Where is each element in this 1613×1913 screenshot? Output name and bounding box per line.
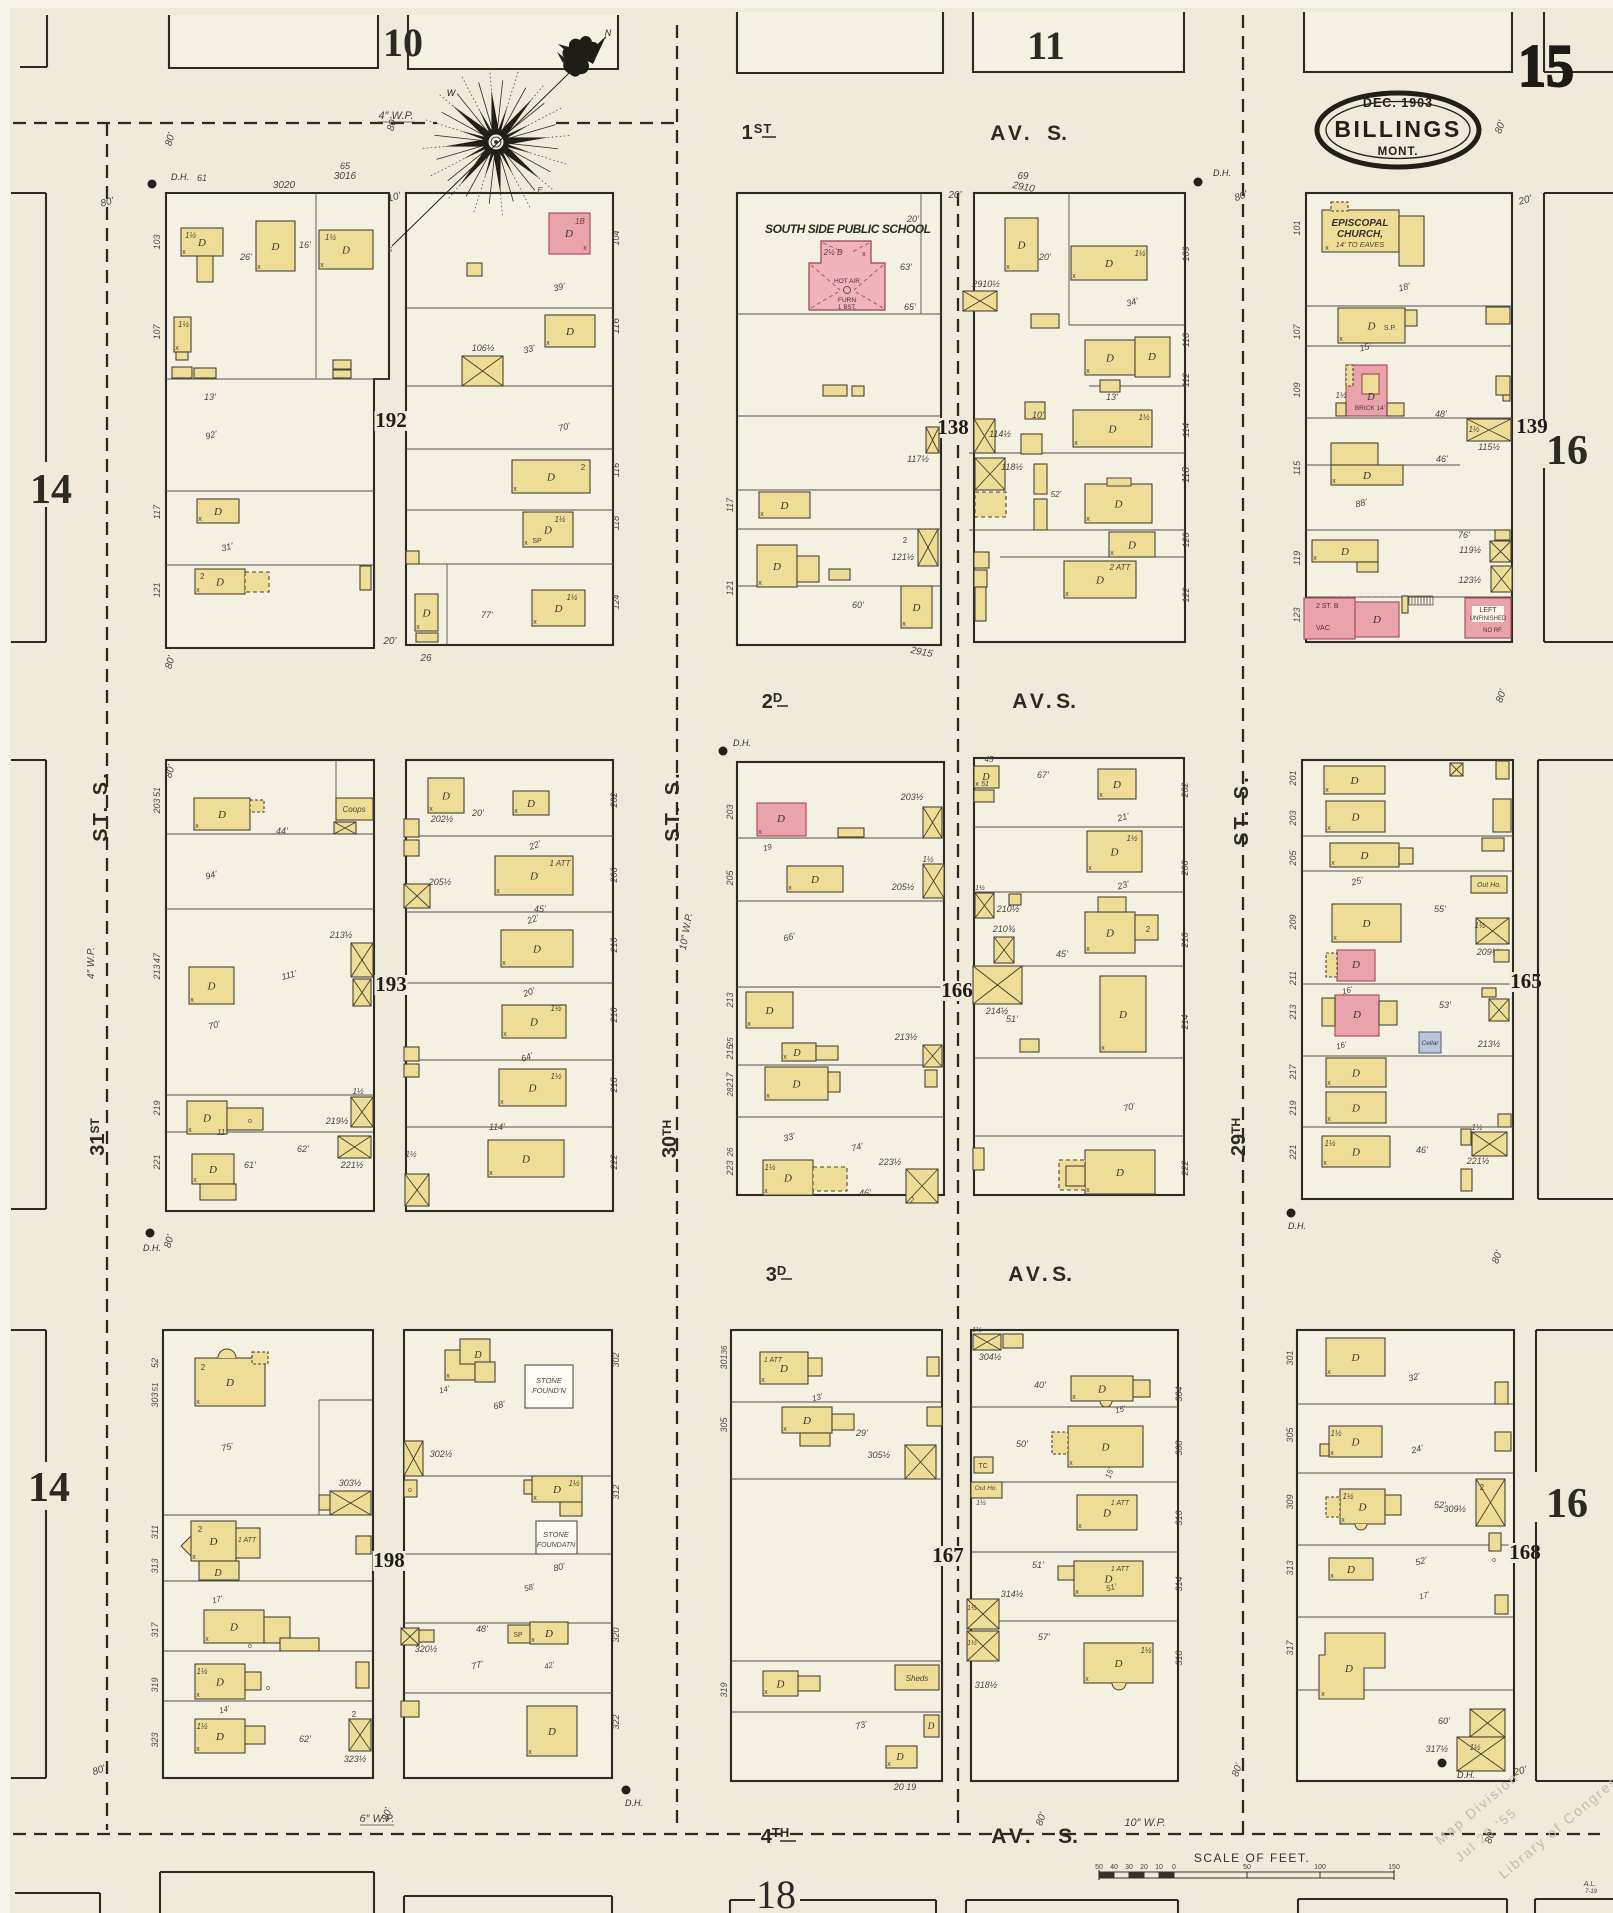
svg-text:D: D bbox=[1108, 424, 1117, 436]
svg-text:D: D bbox=[213, 506, 222, 518]
svg-text:D: D bbox=[229, 1622, 238, 1634]
svg-text:1½: 1½ bbox=[185, 231, 196, 240]
svg-text:11: 11 bbox=[1027, 23, 1065, 68]
svg-text:1½: 1½ bbox=[972, 1326, 982, 1334]
svg-text:219½: 219½ bbox=[325, 1116, 349, 1126]
svg-text:1½: 1½ bbox=[1126, 834, 1137, 843]
svg-text:101: 101 bbox=[1292, 220, 1302, 235]
svg-text:65’: 65’ bbox=[904, 302, 917, 312]
svg-text:114½: 114½ bbox=[989, 429, 1011, 439]
svg-text:x: x bbox=[500, 1099, 504, 1106]
svg-text:1½: 1½ bbox=[1335, 391, 1346, 400]
svg-text:D: D bbox=[1105, 928, 1114, 940]
svg-text:2 ST. B: 2 ST. B bbox=[1316, 603, 1339, 610]
svg-text:1½: 1½ bbox=[1330, 1429, 1341, 1438]
svg-text:x: x bbox=[1330, 1450, 1334, 1457]
svg-text:1½: 1½ bbox=[1140, 1646, 1151, 1655]
svg-text:x: x bbox=[1086, 368, 1090, 375]
svg-text:40’: 40’ bbox=[1034, 1380, 1047, 1390]
svg-text:314½: 314½ bbox=[1001, 1589, 1024, 1599]
svg-text:x: x bbox=[182, 249, 186, 256]
svg-text:1½: 1½ bbox=[554, 515, 565, 524]
svg-text:52: 52 bbox=[150, 1358, 160, 1368]
svg-text:x: x bbox=[188, 1127, 192, 1134]
svg-text:13’: 13’ bbox=[204, 392, 217, 402]
svg-text:305½: 305½ bbox=[867, 1450, 890, 1460]
svg-text:20’: 20’ bbox=[471, 808, 485, 818]
svg-text:45: 45 bbox=[985, 755, 994, 764]
svg-text:D: D bbox=[1340, 546, 1349, 558]
svg-text:221: 221 bbox=[1288, 1144, 1298, 1160]
svg-text:25: 25 bbox=[726, 1037, 735, 1047]
svg-text:2: 2 bbox=[910, 1196, 915, 1205]
svg-text:304: 304 bbox=[1174, 1386, 1184, 1401]
svg-text:46’: 46’ bbox=[1436, 454, 1449, 464]
svg-text:20’: 20’ bbox=[906, 214, 920, 224]
svg-text:121½: 121½ bbox=[892, 552, 915, 562]
svg-text:o: o bbox=[1492, 1557, 1496, 1564]
svg-text:303½: 303½ bbox=[339, 1478, 362, 1488]
svg-text:106½: 106½ bbox=[472, 343, 495, 353]
svg-text:x: x bbox=[196, 587, 200, 594]
svg-text:D: D bbox=[1102, 1508, 1111, 1520]
svg-text:FOUND’N: FOUND’N bbox=[532, 1386, 566, 1395]
svg-text:D: D bbox=[1112, 779, 1121, 791]
svg-text:D: D bbox=[215, 1731, 224, 1743]
svg-text:x: x bbox=[1341, 1517, 1345, 1524]
svg-text:D: D bbox=[1017, 240, 1026, 252]
svg-text:D.H.: D.H. bbox=[171, 172, 189, 182]
svg-text:x: x bbox=[190, 997, 194, 1004]
svg-text:305: 305 bbox=[719, 1417, 729, 1433]
svg-text:D: D bbox=[215, 577, 224, 589]
svg-text:221: 221 bbox=[152, 1154, 162, 1170]
svg-text:x: x bbox=[531, 1637, 535, 1644]
svg-text:S.P.: S.P. bbox=[1384, 325, 1396, 332]
svg-text:320½: 320½ bbox=[415, 1644, 438, 1654]
svg-text:UNFINISHED: UNFINISHED bbox=[1470, 616, 1507, 622]
svg-text:2910½: 2910½ bbox=[971, 279, 1000, 289]
svg-text:20’: 20’ bbox=[947, 190, 962, 201]
svg-text:213: 213 bbox=[725, 992, 735, 1008]
svg-text:217: 217 bbox=[725, 1072, 735, 1089]
svg-text:213½: 213½ bbox=[894, 1032, 918, 1042]
svg-text:D: D bbox=[1114, 1658, 1123, 1670]
svg-text:210: 210 bbox=[1180, 932, 1190, 948]
svg-text:D: D bbox=[772, 561, 781, 573]
svg-text:13’: 13’ bbox=[1106, 392, 1119, 402]
svg-text:222: 222 bbox=[609, 1154, 619, 1170]
svg-text:x: x bbox=[192, 1554, 196, 1561]
svg-text:47: 47 bbox=[152, 952, 162, 963]
svg-text:1 ATT: 1 ATT bbox=[764, 1357, 783, 1364]
svg-text:Coops: Coops bbox=[342, 805, 365, 814]
svg-text:x: x bbox=[783, 1426, 787, 1433]
svg-text:D: D bbox=[271, 241, 280, 253]
svg-text:216: 216 bbox=[609, 1007, 619, 1023]
svg-text:1½: 1½ bbox=[764, 1163, 775, 1172]
svg-text:D: D bbox=[543, 525, 552, 537]
svg-text:x: x bbox=[496, 888, 500, 895]
svg-text:2: 2 bbox=[201, 1363, 206, 1372]
svg-text:x: x bbox=[1085, 1676, 1089, 1683]
svg-text:1½: 1½ bbox=[566, 593, 577, 602]
svg-text:BRICK 14’: BRICK 14’ bbox=[1355, 405, 1386, 412]
svg-text:D.H.: D.H. bbox=[143, 1243, 161, 1253]
svg-text:x: x bbox=[1327, 825, 1331, 832]
svg-text:SOUTH SIDE PUBLIC SCHOOL: SOUTH SIDE PUBLIC SCHOOL bbox=[765, 222, 931, 236]
svg-text:10: 10 bbox=[383, 20, 423, 65]
svg-text:x: x bbox=[205, 1636, 209, 1643]
svg-text:BILLINGS: BILLINGS bbox=[1334, 116, 1461, 142]
svg-text:50: 50 bbox=[1095, 1864, 1103, 1871]
svg-text:26’: 26’ bbox=[239, 252, 253, 262]
svg-text:51’: 51’ bbox=[1006, 1014, 1019, 1024]
svg-text:67’: 67’ bbox=[1037, 770, 1050, 780]
svg-text:117: 117 bbox=[152, 504, 162, 519]
svg-text:1½: 1½ bbox=[976, 1499, 986, 1507]
svg-text:D: D bbox=[1351, 1352, 1360, 1364]
svg-text:x: x bbox=[1072, 273, 1076, 280]
svg-text:o: o bbox=[248, 1643, 252, 1650]
svg-text:1½: 1½ bbox=[196, 1667, 207, 1676]
svg-text:D: D bbox=[765, 1005, 774, 1017]
svg-text:D: D bbox=[1115, 1167, 1124, 1179]
svg-text:D: D bbox=[547, 1726, 556, 1738]
svg-text:1½: 1½ bbox=[568, 1479, 579, 1488]
svg-text:D: D bbox=[544, 1628, 553, 1640]
svg-text:123: 123 bbox=[1292, 607, 1302, 622]
svg-text:116: 116 bbox=[611, 463, 621, 477]
svg-text:D: D bbox=[1147, 351, 1156, 363]
svg-text:D: D bbox=[1351, 1068, 1360, 1080]
svg-text:51: 51 bbox=[152, 787, 162, 797]
svg-text:D: D bbox=[1095, 575, 1104, 587]
svg-text:x: x bbox=[533, 1495, 537, 1502]
svg-text:211: 211 bbox=[1288, 971, 1298, 986]
svg-text:D: D bbox=[1360, 850, 1369, 862]
svg-text:16: 16 bbox=[1546, 428, 1588, 474]
svg-text:STONE: STONE bbox=[536, 1376, 563, 1385]
svg-text:53’: 53’ bbox=[1439, 1000, 1452, 1010]
svg-text:D: D bbox=[202, 1113, 211, 1125]
svg-text:10’: 10’ bbox=[1032, 410, 1045, 420]
svg-text:S.: S. bbox=[1058, 1825, 1078, 1848]
svg-text:323: 323 bbox=[150, 1732, 160, 1747]
svg-text:318: 318 bbox=[1174, 1650, 1184, 1665]
svg-text:D: D bbox=[1351, 959, 1360, 971]
svg-text:Sheds: Sheds bbox=[906, 1674, 929, 1683]
svg-text:x: x bbox=[503, 1031, 507, 1038]
svg-text:1½: 1½ bbox=[975, 884, 985, 892]
svg-text:214: 214 bbox=[1180, 1014, 1190, 1030]
svg-text:209: 209 bbox=[1288, 914, 1298, 930]
svg-text:1½: 1½ bbox=[922, 855, 933, 864]
svg-text:114’: 114’ bbox=[489, 1122, 506, 1132]
svg-text:D: D bbox=[209, 1536, 218, 1548]
svg-text:167: 167 bbox=[932, 1543, 964, 1567]
svg-text:DEC. 1903: DEC. 1903 bbox=[1363, 96, 1433, 110]
svg-text:14: 14 bbox=[30, 467, 72, 513]
svg-text:302: 302 bbox=[611, 1352, 621, 1367]
svg-text:x: x bbox=[196, 1399, 200, 1406]
svg-text:D: D bbox=[1118, 1009, 1127, 1021]
svg-text:202½: 202½ bbox=[430, 814, 454, 824]
svg-text:D: D bbox=[565, 326, 574, 338]
svg-text:2: 2 bbox=[1146, 925, 1151, 934]
svg-text:HOT AIR: HOT AIR bbox=[834, 278, 860, 285]
svg-text:115: 115 bbox=[1292, 460, 1302, 475]
svg-text:28: 28 bbox=[726, 1087, 735, 1097]
svg-text:x: x bbox=[196, 1692, 200, 1699]
svg-text:D: D bbox=[441, 791, 450, 803]
svg-text:193: 193 bbox=[375, 972, 407, 996]
svg-text:51: 51 bbox=[151, 1383, 160, 1392]
svg-text:D: D bbox=[1351, 1103, 1360, 1115]
svg-text:D.H.: D.H. bbox=[733, 738, 751, 748]
svg-text:206: 206 bbox=[609, 867, 619, 883]
svg-text:4″ W.P.: 4″ W.P. bbox=[86, 947, 97, 979]
svg-text:119½: 119½ bbox=[1459, 545, 1481, 555]
svg-text:x: x bbox=[198, 516, 202, 523]
svg-text:202: 202 bbox=[609, 792, 619, 808]
svg-text:x: x bbox=[1086, 946, 1090, 953]
svg-text:x: x bbox=[1327, 1369, 1331, 1376]
svg-text:x: x bbox=[489, 1170, 493, 1177]
svg-text:x: x bbox=[1321, 1691, 1325, 1698]
svg-text:x: x bbox=[1325, 245, 1329, 252]
svg-text:122: 122 bbox=[1181, 587, 1191, 602]
svg-text:x: x bbox=[196, 1746, 200, 1753]
svg-text:221½: 221½ bbox=[340, 1160, 364, 1170]
svg-text:x: x bbox=[764, 1689, 768, 1696]
svg-text:124: 124 bbox=[611, 594, 621, 609]
svg-text:2: 2 bbox=[903, 536, 908, 545]
svg-text:D: D bbox=[422, 608, 431, 620]
svg-text:2: 2 bbox=[200, 572, 205, 581]
svg-text:223: 223 bbox=[725, 1160, 735, 1176]
svg-text:51: 51 bbox=[981, 781, 989, 788]
svg-text:77’: 77’ bbox=[481, 610, 494, 620]
svg-text:109: 109 bbox=[1181, 246, 1191, 261]
svg-text:x: x bbox=[1110, 550, 1114, 557]
svg-text:SP: SP bbox=[532, 538, 542, 545]
svg-text:D: D bbox=[1352, 1009, 1361, 1021]
svg-text:40: 40 bbox=[1110, 1864, 1118, 1871]
svg-text:D: D bbox=[776, 1679, 785, 1691]
svg-text:118: 118 bbox=[1181, 467, 1192, 483]
svg-text:D: D bbox=[532, 944, 541, 956]
svg-text:1½: 1½ bbox=[967, 1639, 977, 1647]
svg-text:MONT.: MONT. bbox=[1378, 146, 1419, 158]
svg-text:1½: 1½ bbox=[550, 1004, 561, 1013]
svg-text:x: x bbox=[1101, 1045, 1105, 1052]
svg-text:205½: 205½ bbox=[428, 877, 452, 887]
svg-text:109: 109 bbox=[1292, 382, 1302, 397]
svg-text:D: D bbox=[529, 1017, 538, 1029]
svg-text:x: x bbox=[1065, 591, 1069, 598]
svg-text:10: 10 bbox=[1155, 1864, 1163, 1871]
svg-text:D: D bbox=[564, 228, 573, 240]
svg-text:52’: 52’ bbox=[1051, 490, 1062, 499]
svg-text:D: D bbox=[197, 237, 206, 249]
svg-text:D: D bbox=[213, 1568, 222, 1579]
svg-text:30: 30 bbox=[1125, 1864, 1133, 1871]
svg-text:o: o bbox=[266, 1685, 270, 1692]
svg-text:115½: 115½ bbox=[1478, 442, 1500, 452]
svg-text:D: D bbox=[1350, 775, 1359, 787]
svg-text:1½: 1½ bbox=[550, 1072, 561, 1081]
svg-text:323½: 323½ bbox=[344, 1754, 367, 1764]
svg-text:48’: 48’ bbox=[476, 1624, 489, 1634]
svg-text:1½: 1½ bbox=[1342, 1492, 1353, 1501]
svg-text:SP: SP bbox=[513, 1632, 523, 1639]
svg-text:D: D bbox=[810, 874, 819, 886]
svg-text:VAC: VAC bbox=[1316, 625, 1330, 632]
svg-text:15: 15 bbox=[1518, 33, 1574, 99]
svg-text:x: x bbox=[758, 829, 762, 836]
svg-text:309½: 309½ bbox=[1443, 1504, 1466, 1514]
svg-text:1½: 1½ bbox=[1468, 425, 1479, 434]
svg-text:1B: 1B bbox=[575, 217, 585, 226]
svg-text:x: x bbox=[887, 1761, 891, 1768]
svg-text:EPISCOPAL: EPISCOPAL bbox=[1331, 218, 1388, 229]
svg-text:FOUNDATN: FOUNDATN bbox=[537, 1542, 576, 1549]
svg-text:110: 110 bbox=[1181, 333, 1191, 347]
svg-text:AV.: AV. bbox=[1012, 690, 1056, 713]
svg-text:121: 121 bbox=[725, 580, 735, 595]
svg-text:61: 61 bbox=[197, 173, 207, 183]
svg-text:117½: 117½ bbox=[907, 454, 929, 464]
svg-text:1 ‌ BST.: 1 ‌ BST. bbox=[838, 305, 857, 311]
svg-text:100: 100 bbox=[1314, 1864, 1326, 1871]
svg-text:311: 311 bbox=[150, 1525, 160, 1539]
svg-text:20’: 20’ bbox=[382, 636, 397, 647]
svg-text:50’: 50’ bbox=[1016, 1439, 1029, 1449]
svg-text:x: x bbox=[758, 580, 762, 587]
svg-text:D: D bbox=[802, 1415, 811, 1427]
svg-text:D: D bbox=[1101, 1442, 1110, 1454]
svg-text:210¾: 210¾ bbox=[992, 924, 1016, 934]
svg-text:1 ATT: 1 ATT bbox=[1111, 1566, 1130, 1573]
svg-text:FURN: FURN bbox=[838, 297, 856, 304]
svg-text:D: D bbox=[780, 500, 789, 512]
svg-text:D: D bbox=[1127, 540, 1136, 552]
svg-text:221½: 221½ bbox=[1466, 1156, 1490, 1166]
svg-text:202: 202 bbox=[1180, 782, 1190, 798]
svg-text:198: 198 bbox=[373, 1548, 405, 1572]
svg-text:1½: 1½ bbox=[1134, 249, 1145, 258]
svg-text:1 ATT: 1 ATT bbox=[1111, 1500, 1130, 1507]
svg-text:20’: 20’ bbox=[1038, 252, 1052, 262]
svg-text:45’: 45’ bbox=[1056, 949, 1069, 959]
svg-text:D: D bbox=[1362, 470, 1371, 482]
svg-text:1½: 1½ bbox=[1138, 413, 1149, 422]
svg-text:x: x bbox=[320, 262, 324, 269]
svg-text:D: D bbox=[341, 245, 350, 257]
svg-text:1½: 1½ bbox=[1471, 1123, 1482, 1132]
svg-text:D: D bbox=[1366, 392, 1375, 403]
svg-text:x: x bbox=[1078, 1523, 1082, 1530]
svg-text:65: 65 bbox=[340, 161, 351, 171]
svg-text:44’: 44’ bbox=[276, 826, 289, 836]
svg-text:AV.: AV. bbox=[1008, 1263, 1052, 1286]
svg-text:26: 26 bbox=[419, 653, 432, 664]
svg-text:x: x bbox=[193, 1177, 197, 1184]
svg-text:D.H.: D.H. bbox=[625, 1798, 643, 1808]
svg-text:26: 26 bbox=[726, 1147, 735, 1157]
svg-text:Out Ho.: Out Ho. bbox=[1477, 882, 1501, 889]
svg-text:217: 217 bbox=[1288, 1064, 1298, 1081]
svg-text:x: x bbox=[1323, 1160, 1327, 1167]
svg-text:20: 20 bbox=[1140, 1864, 1148, 1871]
svg-text:213: 213 bbox=[1288, 1004, 1298, 1020]
svg-text:x: x bbox=[446, 1373, 450, 1380]
svg-text:51’: 51’ bbox=[1032, 1560, 1045, 1570]
svg-text:104: 104 bbox=[611, 230, 621, 245]
svg-text:317½: 317½ bbox=[1425, 1744, 1448, 1754]
svg-text:103: 103 bbox=[152, 234, 162, 249]
svg-text:D: D bbox=[927, 1721, 935, 1731]
svg-text:x: x bbox=[514, 808, 518, 815]
svg-text:320: 320 bbox=[611, 1627, 621, 1642]
svg-text:107: 107 bbox=[152, 324, 162, 340]
svg-text:AV.: AV. bbox=[991, 1825, 1035, 1848]
svg-text:x: x bbox=[1327, 1080, 1331, 1087]
svg-text:D: D bbox=[1344, 1663, 1353, 1675]
svg-text:x: x bbox=[783, 1054, 787, 1061]
svg-text:314: 314 bbox=[1174, 1576, 1184, 1591]
svg-text:52’: 52’ bbox=[1434, 1500, 1447, 1510]
svg-text:116: 116 bbox=[611, 318, 622, 334]
svg-text:x: x bbox=[583, 245, 587, 252]
svg-text:x: x bbox=[766, 1093, 770, 1100]
svg-text:60’: 60’ bbox=[852, 600, 865, 610]
svg-text:14’ TO EAVES: 14’ TO EAVES bbox=[1336, 240, 1385, 249]
svg-text:D: D bbox=[546, 472, 555, 484]
svg-text:76’: 76’ bbox=[1458, 530, 1471, 540]
svg-text:55’: 55’ bbox=[1434, 904, 1447, 914]
svg-text:11’: 11’ bbox=[217, 1128, 227, 1137]
svg-text:223½: 223½ bbox=[878, 1157, 902, 1167]
svg-text:36: 36 bbox=[720, 1345, 729, 1354]
svg-text:1½: 1½ bbox=[325, 233, 336, 242]
svg-text:1½: 1½ bbox=[178, 320, 189, 329]
svg-text:166: 166 bbox=[941, 978, 973, 1002]
svg-text:x: x bbox=[524, 540, 528, 547]
svg-text:61’: 61’ bbox=[244, 1160, 257, 1170]
svg-text:118½: 118½ bbox=[1001, 462, 1023, 472]
svg-text:x: x bbox=[513, 486, 517, 493]
svg-text:150: 150 bbox=[1388, 1864, 1400, 1871]
svg-text:x: x bbox=[195, 823, 199, 830]
svg-text:D: D bbox=[552, 1484, 561, 1496]
svg-text:Cellar: Cellar bbox=[1422, 1040, 1440, 1047]
svg-text:313: 313 bbox=[1285, 1560, 1295, 1575]
svg-text:219: 219 bbox=[1288, 1100, 1298, 1116]
svg-text:x: x bbox=[1006, 264, 1010, 271]
svg-text:x: x bbox=[1074, 440, 1078, 447]
svg-text:CHURCH,: CHURCH, bbox=[1337, 229, 1383, 240]
svg-text:x: x bbox=[1330, 1573, 1334, 1580]
svg-text:x: x bbox=[1333, 935, 1337, 942]
svg-text:317: 317 bbox=[1285, 1640, 1295, 1656]
svg-text:LEFT: LEFT bbox=[1479, 607, 1497, 614]
svg-text:310: 310 bbox=[1174, 1510, 1184, 1525]
svg-text:192: 192 bbox=[375, 408, 407, 432]
svg-text:112: 112 bbox=[1181, 373, 1191, 387]
svg-text:N: N bbox=[605, 28, 612, 38]
